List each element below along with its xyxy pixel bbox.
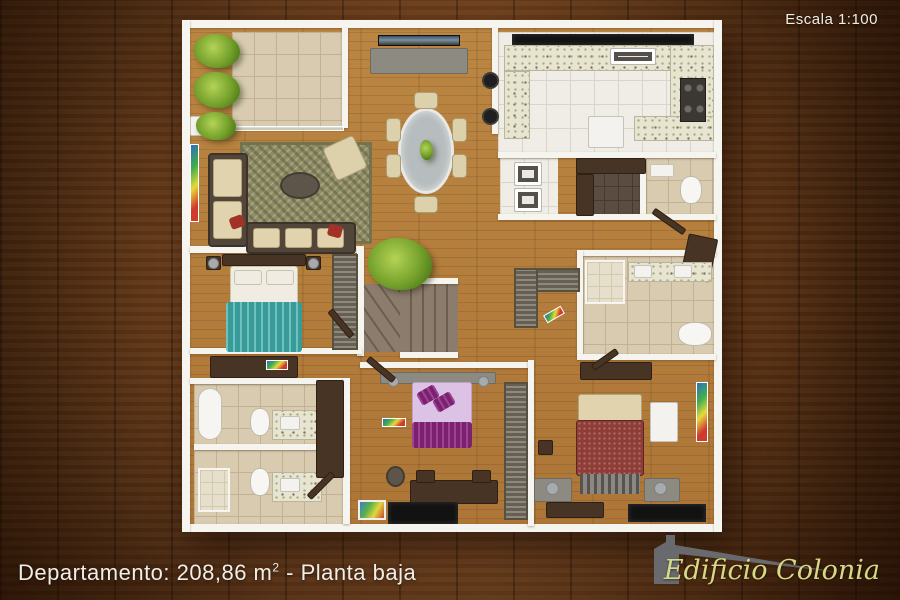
master-toilet <box>678 322 712 346</box>
dining-centerpiece-plant <box>420 140 433 160</box>
sofa-left-cushion-1 <box>213 159 242 197</box>
dining-chair-left-2 <box>386 154 401 178</box>
master-sink-1 <box>634 265 652 278</box>
bedroom2-rug <box>358 500 386 520</box>
outer-wall-right <box>714 20 722 532</box>
bedroom3-wall-art <box>696 382 708 442</box>
master-sink-2 <box>674 265 692 278</box>
outer-wall-bottom <box>182 524 722 532</box>
stair-plant <box>368 238 432 290</box>
dining-chair-top <box>414 92 438 109</box>
scale-label: Escala 1:100 <box>785 11 878 28</box>
washer <box>514 162 542 186</box>
pantry-cabinet-side <box>576 174 594 216</box>
bed2-lamp-right <box>478 376 489 387</box>
shower <box>585 260 625 304</box>
bedroom2-basket <box>386 466 405 487</box>
caption-suffix: - Planta baja <box>280 560 417 585</box>
bed1-pillow-2 <box>266 270 294 285</box>
bed3-foot-throw <box>580 474 640 494</box>
rendered-floorplan-image: { "header": { "scale_label": "Escala 1:1… <box>0 0 900 600</box>
bed1-headboard <box>222 254 306 266</box>
half-bath-sink <box>650 164 674 177</box>
caption-superscript: 2 <box>272 561 279 575</box>
drafting-desk <box>650 402 678 442</box>
bed1-pillow-1 <box>234 270 262 285</box>
bedroom2-tv-mat <box>388 502 458 524</box>
bed3-blanket-red <box>576 420 644 476</box>
master-bath-left-wall <box>577 250 583 356</box>
bed1-lamp-right <box>308 258 319 269</box>
dining-chair-right-2 <box>452 154 467 178</box>
caption-text: Departamento: 208,86 m <box>18 560 272 585</box>
sofa-bottom-cushion-1 <box>253 228 280 248</box>
terrace-plant-1 <box>194 34 240 68</box>
logo: Edificio Colonia <box>630 538 880 590</box>
bedroom2-desk <box>410 480 498 504</box>
hall-wardrobe <box>316 380 344 478</box>
bathroom2-toilet <box>250 468 270 496</box>
terrace-floor <box>232 32 344 128</box>
bedroom2-chair-2 <box>472 470 491 483</box>
kitchen-sink <box>610 48 656 65</box>
dryer <box>514 188 542 212</box>
fridge <box>588 116 624 148</box>
bathroom2-shower <box>198 468 230 512</box>
master-closet-side <box>514 268 538 328</box>
bed2-foot-magenta <box>412 422 472 448</box>
bedroom1-closet <box>332 254 358 350</box>
outer-wall-left <box>182 20 190 532</box>
stair-rail-bottom <box>400 352 458 358</box>
bathroom1-toilet <box>250 408 270 436</box>
bed1-lamp-left <box>208 258 219 269</box>
terrace-right-wall <box>342 28 348 128</box>
bed3-headboard-pillow <box>578 394 642 422</box>
stair-treads <box>400 284 458 352</box>
tv-screen <box>378 35 460 46</box>
half-bath-toilet <box>680 176 702 204</box>
living-wall-art <box>190 144 199 222</box>
tv-console <box>370 48 468 74</box>
caption: Departamento: 208,86 m2 - Planta baja <box>18 560 416 586</box>
bed1-blanket-teal <box>226 302 302 352</box>
bathroom2-sink <box>280 478 300 492</box>
floorplan-rendering <box>182 20 722 532</box>
sofa-bottom-cushion-2 <box>285 228 312 248</box>
utility-bottom-wall <box>498 214 716 220</box>
dining-chair-left-1 <box>386 118 401 142</box>
bedroom3-tv-mat <box>628 504 706 522</box>
bedroom2-floor-books <box>382 418 406 427</box>
bed3-lamp-left <box>546 482 559 495</box>
coffee-table <box>280 172 320 199</box>
bedroom1-right-wall <box>357 246 364 356</box>
dining-chair-right-1 <box>452 118 467 142</box>
dining-chair-bottom <box>414 196 438 213</box>
bed3-lamp-right <box>654 482 667 495</box>
desk-books <box>266 360 288 370</box>
bedroom2-top-wall <box>360 362 530 368</box>
outer-wall-top <box>182 20 722 28</box>
bathroom-right-wall <box>343 378 350 524</box>
logo-text: Edificio Colonia <box>664 555 880 586</box>
bedroom2-chair-1 <box>416 470 435 483</box>
bedroom2-closet <box>504 382 528 520</box>
bedroom3-console <box>546 502 604 518</box>
bathroom1-sink <box>280 416 300 430</box>
bar-stool-2 <box>482 108 499 125</box>
bathtub <box>198 388 222 440</box>
terrace-plant-2 <box>194 72 240 108</box>
kitchen-counter-left <box>504 71 530 139</box>
terrace-plant-3 <box>196 112 236 140</box>
pantry-cabinet-top <box>576 158 646 174</box>
terrace-glass-door <box>234 126 344 131</box>
stair-winder <box>364 284 400 352</box>
bedroom3-basket <box>538 440 553 455</box>
kitchen-backsplash <box>512 34 694 45</box>
bar-stool-1 <box>482 72 499 89</box>
stove <box>680 78 706 122</box>
bedroom-divider-wall <box>528 360 534 526</box>
